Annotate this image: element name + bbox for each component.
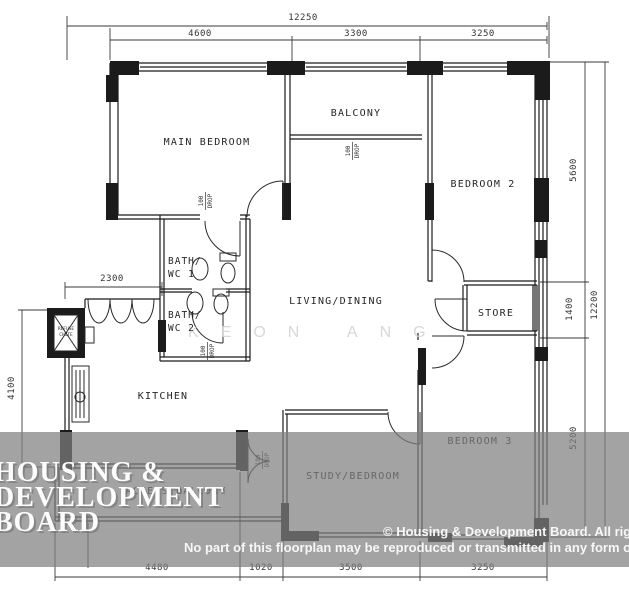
drop-note-word: DROP bbox=[354, 143, 361, 158]
agent-watermark: KEON ANG bbox=[188, 324, 448, 341]
copyright-line-2: No part of this floorplan may be reprodu… bbox=[184, 540, 629, 555]
room-label-kitchen: KITCHEN bbox=[138, 391, 189, 402]
drop-note-word: DROP bbox=[209, 343, 216, 358]
dim-top-seg1: 4600 bbox=[188, 29, 212, 39]
room-label-bath-wc1-line2: WC 1 bbox=[168, 269, 195, 280]
dim-right-seg2: 1400 bbox=[565, 297, 575, 321]
dim-top-seg2: 3300 bbox=[344, 29, 368, 39]
refuse-chute-label-1: REFUSE bbox=[58, 326, 75, 332]
drop-note-bath1: 100 DROP bbox=[198, 192, 214, 210]
dim-top-overall: 12250 bbox=[288, 13, 318, 23]
drop-note-word: DROP bbox=[207, 193, 214, 208]
dim-left-width: 2300 bbox=[100, 274, 124, 284]
refuse-chute-label-2: CHUTE bbox=[59, 332, 73, 338]
room-label-bath-wc2-line1: BATH/ bbox=[168, 310, 202, 321]
room-label-bedroom-2: BEDROOM 2 bbox=[451, 179, 516, 190]
wc1-toilet-icon bbox=[221, 263, 235, 283]
dim-left-height: 4100 bbox=[7, 376, 17, 400]
room-label-living-dining: LIVING/DINING bbox=[289, 296, 383, 307]
room-label-balcony: BALCONY bbox=[331, 108, 382, 119]
dim-right-seg1: 5600 bbox=[569, 158, 579, 182]
room-label-bath-wc1-line1: BATH/ bbox=[168, 256, 202, 267]
dim-top-seg3: 3250 bbox=[471, 29, 495, 39]
floorplan-canvas: REFUSE CHUTE KEON ANG MAIN BEDROOM BALCO… bbox=[0, 0, 629, 600]
wc2-toilet-icon bbox=[214, 294, 228, 314]
drop-note-balcony: 100 DROP bbox=[345, 142, 361, 160]
drop-note-value: 100 bbox=[198, 195, 205, 206]
room-label-bath-wc2-line2: WC 2 bbox=[168, 323, 195, 334]
room-label-store: STORE bbox=[478, 308, 514, 319]
drop-note-value: 100 bbox=[200, 345, 207, 356]
room-label-main-bedroom: MAIN BEDROOM bbox=[164, 137, 251, 148]
kitchen-sink-lines bbox=[76, 370, 84, 418]
hdb-watermark-line-3: BOARD bbox=[0, 507, 100, 538]
dim-right-overall: 12200 bbox=[590, 290, 600, 320]
drop-note-value: 100 bbox=[345, 145, 352, 156]
copyright-line-1: © Housing & Development Board. All right… bbox=[383, 524, 629, 539]
chute-hopper bbox=[85, 327, 94, 343]
